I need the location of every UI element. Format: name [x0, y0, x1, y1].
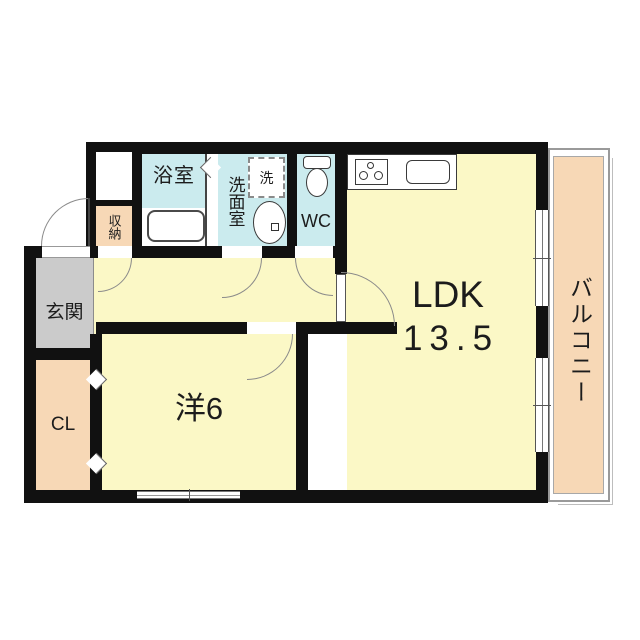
bathtub-icon [147, 210, 205, 242]
toilet-label: WC [297, 208, 335, 234]
wall-right-upper [536, 142, 548, 210]
bathroom-label: 浴室 [142, 163, 206, 189]
toilet-door-gap [295, 246, 333, 258]
entrance-label: 玄関 [36, 299, 93, 325]
washing-machine-label: 洗 [260, 168, 274, 188]
window-western-bottom [137, 491, 240, 499]
wall-washroom-toilet [287, 142, 297, 246]
washroom-label: 洗面室 [221, 158, 249, 244]
western-room-label: 洋6 [138, 387, 260, 429]
closet-label: CL [36, 411, 90, 437]
washing-machine-icon: 洗 [248, 157, 285, 198]
washroom-door-gap [222, 246, 262, 258]
ldk-area-label: 13.5 [383, 316, 519, 360]
balcony-label: バルコニー [560, 268, 598, 413]
wall-top [88, 142, 548, 154]
stove-icon [355, 159, 388, 185]
storage-label: 収納 [98, 208, 130, 246]
wall-right-middle [536, 306, 548, 358]
balcony-shadow-right [612, 158, 613, 504]
wall-toilet-ldk [335, 142, 347, 246]
washbasin-icon [253, 201, 286, 244]
toilet-bowl-icon [306, 168, 328, 197]
floor-plan: バルコニー [0, 0, 640, 640]
entrance-door-leaf [88, 198, 90, 246]
western-door-gap [247, 322, 296, 334]
wall-bottom [24, 490, 548, 503]
window-balcony-upper [535, 210, 549, 306]
wall-hall-ldk-stub [335, 246, 347, 274]
entrance-door-gap [42, 246, 90, 258]
wall-western-ldk [296, 322, 308, 502]
ldk-label: LDK [388, 272, 508, 316]
entrance-door-arc [41, 198, 89, 246]
meter-box [96, 152, 132, 200]
kitchen-sink-icon [406, 160, 450, 184]
balcony-shadow-bottom [558, 504, 613, 505]
window-balcony-lower [535, 358, 549, 452]
wall-left [24, 246, 36, 503]
storage-door-gap [98, 246, 132, 258]
wall-right-lower [536, 452, 548, 503]
